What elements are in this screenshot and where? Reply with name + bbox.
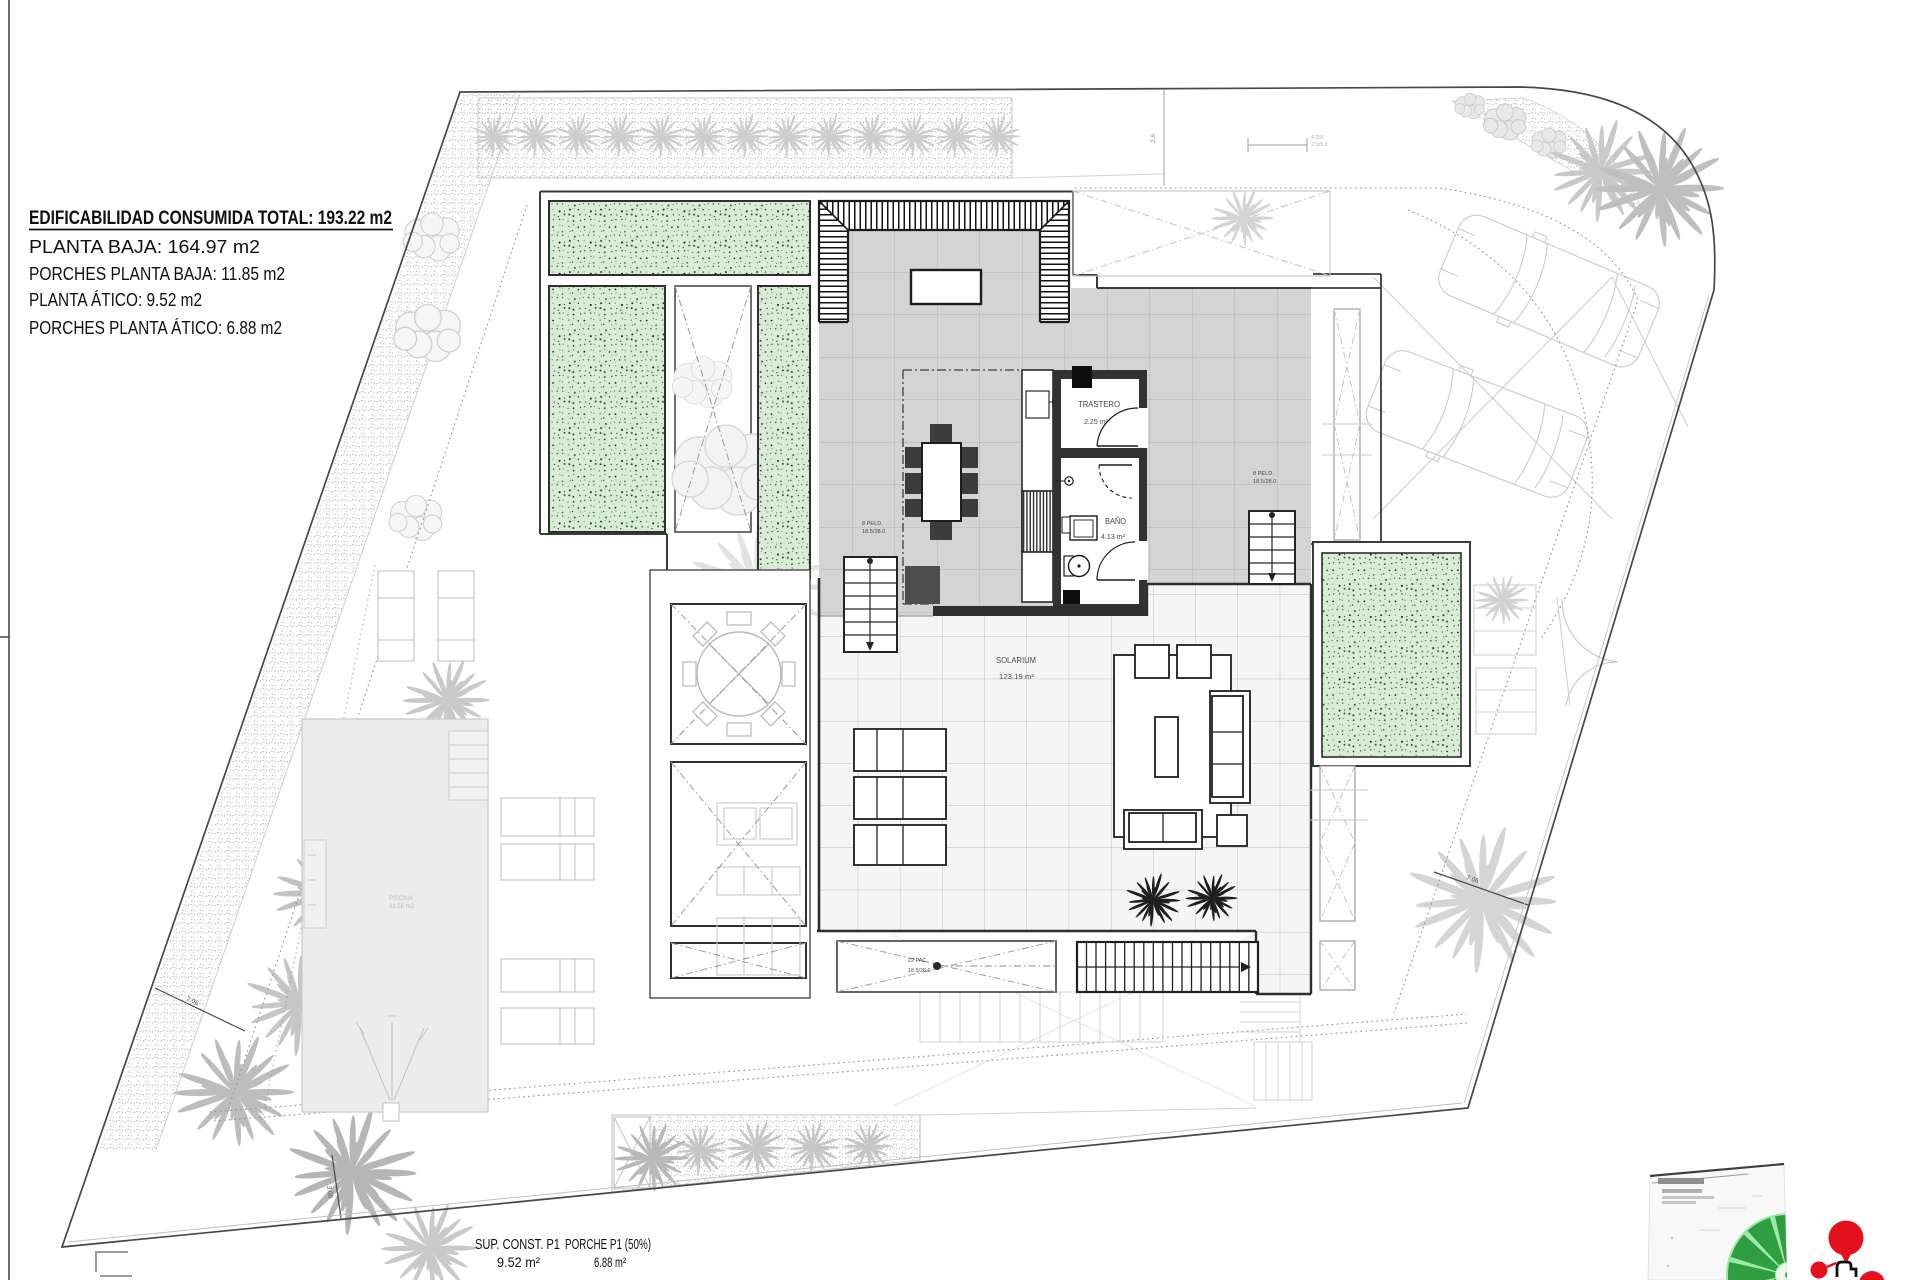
svg-text:2.5x5.0: 2.5x5.0 (1311, 142, 1328, 148)
svg-text:PISCINA: PISCINA (389, 896, 413, 902)
svg-text:33.55 m2: 33.55 m2 (389, 904, 415, 910)
svg-text:8 PELD.: 8 PELD. (1253, 471, 1274, 477)
svg-text:8 PELD.: 8 PELD. (862, 521, 883, 527)
svg-text:EDIFICABILIDAD CONSUMIDA TOTAL: EDIFICABILIDAD CONSUMIDA TOTAL: 193.22 m… (29, 207, 392, 229)
svg-text:PORCHES PLANTA BAJA: 11.85 m2: PORCHES PLANTA BAJA: 11.85 m2 (29, 263, 285, 284)
svg-text:18.5/28.0: 18.5/28.0 (862, 529, 885, 535)
svg-text:6.88 m²: 6.88 m² (594, 1254, 626, 1270)
svg-text:SUP. CONST. P1: SUP. CONST. P1 (475, 1237, 560, 1253)
svg-text:PORCHE P1 (50%): PORCHE P1 (50%) (565, 1237, 651, 1253)
svg-text:2.6: 2.6 (1150, 134, 1157, 143)
svg-text:9.52 m²: 9.52 m² (497, 1254, 540, 1270)
svg-text:BAÑO: BAÑO (1105, 516, 1126, 526)
svg-text:18.5/28.0: 18.5/28.0 (1253, 479, 1276, 485)
svg-text:4.13 m²: 4.13 m² (1101, 532, 1125, 541)
svg-text:TRASTERO: TRASTERO (1078, 399, 1120, 409)
svg-text:18.5/28.0: 18.5/28.0 (908, 968, 930, 974)
svg-text:4.050: 4.050 (1311, 135, 1324, 141)
svg-text:22 PAC.: 22 PAC. (908, 958, 928, 964)
svg-text:PORCHES PLANTA ÁTICO: 6.88 m2: PORCHES PLANTA ÁTICO: 6.88 m2 (29, 317, 282, 338)
svg-text:2.25 m²: 2.25 m² (1084, 417, 1108, 426)
svg-text:123.19 m²: 123.19 m² (999, 672, 1035, 681)
svg-text:PLANTA ÁTICO: 9.52 m2: PLANTA ÁTICO: 9.52 m2 (29, 289, 202, 310)
svg-text:SOLARIUM: SOLARIUM (996, 656, 1036, 665)
svg-text:PLANTA BAJA: 164.97 m2: PLANTA BAJA: 164.97 m2 (29, 236, 260, 257)
